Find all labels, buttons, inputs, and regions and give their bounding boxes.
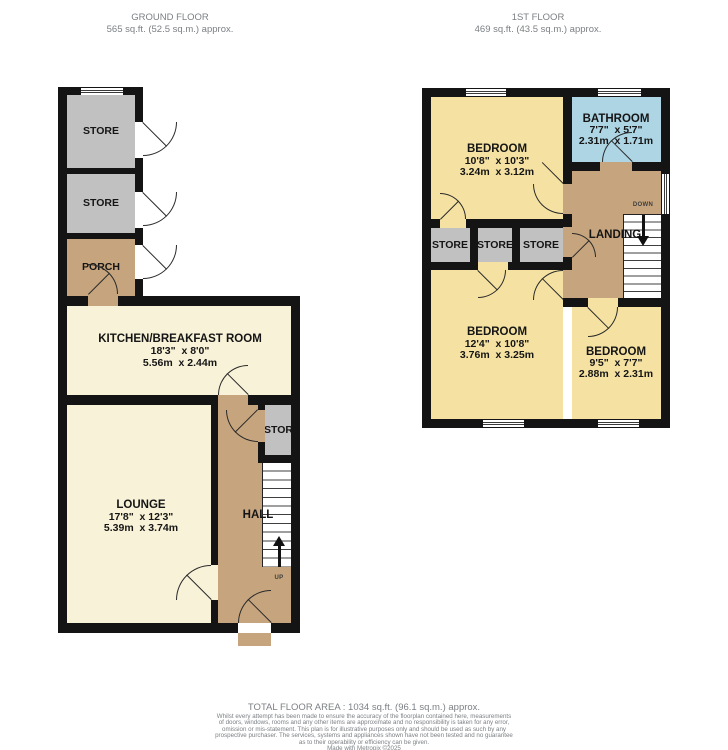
ff-store-1-label: STORE [432, 239, 468, 251]
window [597, 420, 640, 427]
door-opening [478, 262, 508, 270]
window [482, 420, 525, 427]
ff-landing-label: LANDING [589, 229, 641, 241]
door-opening [600, 162, 632, 171]
wall [67, 168, 135, 174]
ff-stairs-down-arrow [642, 215, 645, 237]
ff-store-2-label: STORE [477, 239, 513, 251]
door-opening [563, 184, 572, 214]
door-opening [563, 227, 572, 257]
ff-bedroom-1-metric: 3.24m x 3.12m [460, 166, 534, 178]
wall [291, 296, 300, 633]
door-opening [563, 270, 572, 298]
ff-bedroom-1-imperial: 10'8" x 10'3" [465, 155, 530, 167]
window [662, 173, 669, 215]
door-opening [218, 395, 248, 405]
gf-store-2-label: STORE [83, 197, 119, 209]
wall [67, 233, 135, 239]
gf-lounge-imperial: 17'8" x 12'3" [109, 511, 174, 523]
ff-bedroom-2-imperial: 12'4" x 10'8" [465, 338, 530, 350]
door-opening [88, 296, 118, 306]
metropix-credit: Made with Metropix ©2025 [0, 746, 728, 750]
ff-bedroom-1-label: BEDROOM [467, 143, 527, 155]
wall [58, 87, 67, 633]
window [597, 89, 642, 96]
gf-store-1-label: STORE [83, 125, 119, 137]
window [465, 89, 507, 96]
first-floor-title: 1ST FLOOR [512, 12, 565, 23]
door-opening [440, 219, 466, 228]
first-floor-area: 469 sq.ft. (43.5 sq.m.) approx. [475, 24, 602, 35]
ff-stairs-down-arrowhead [637, 236, 649, 246]
gf-kitchen-label: KITCHEN/BREAKFAST ROOM [98, 333, 262, 345]
door-opening [135, 192, 143, 228]
wall [512, 228, 520, 262]
gf-stairs-up-arrowhead [273, 536, 285, 546]
door-opening [135, 245, 143, 279]
ground-floor-area: 565 sq.ft. (52.5 sq.m.) approx. [107, 24, 234, 35]
gf-up-label: UP [275, 575, 284, 581]
door-opening [588, 298, 618, 307]
door-opening [211, 565, 218, 600]
door-opening [258, 410, 265, 442]
ff-down-label: DOWN [633, 202, 653, 208]
ground-floor-title: GROUND FLOOR [131, 12, 209, 23]
wall [470, 228, 478, 262]
ff-bedroom-3-metric: 2.88m x 2.31m [579, 368, 653, 380]
window [80, 88, 124, 95]
gf-kitchen-metric: 5.56m x 2.44m [143, 357, 217, 369]
gf-stairs-up-arrow [278, 546, 281, 567]
ff-store-3-label: STORE [523, 239, 559, 251]
gf-kitchen-imperial: 18'3" x 8'0" [151, 345, 210, 357]
disclaimer: Whilst every attempt has been made to en… [0, 714, 728, 750]
gf-lounge-metric: 5.39m x 3.74m [104, 522, 178, 534]
total-floor-area: TOTAL FLOOR AREA : 1034 sq.ft. (96.1 sq.… [0, 702, 728, 713]
front-door-opening [238, 623, 271, 633]
gf-lounge-label: LOUNGE [116, 499, 165, 511]
door-opening [135, 122, 143, 158]
gf-hall-label: HALL [243, 509, 274, 521]
ff-bedroom-2-label: BEDROOM [467, 326, 527, 338]
floorplan-page: GROUND FLOOR 565 sq.ft. (52.5 sq.m.) app… [0, 0, 728, 750]
front-door-leaf-panel [238, 633, 271, 646]
wall [661, 88, 670, 428]
wall [422, 88, 431, 428]
ff-bedroom-2-metric: 3.76m x 3.25m [460, 349, 534, 361]
